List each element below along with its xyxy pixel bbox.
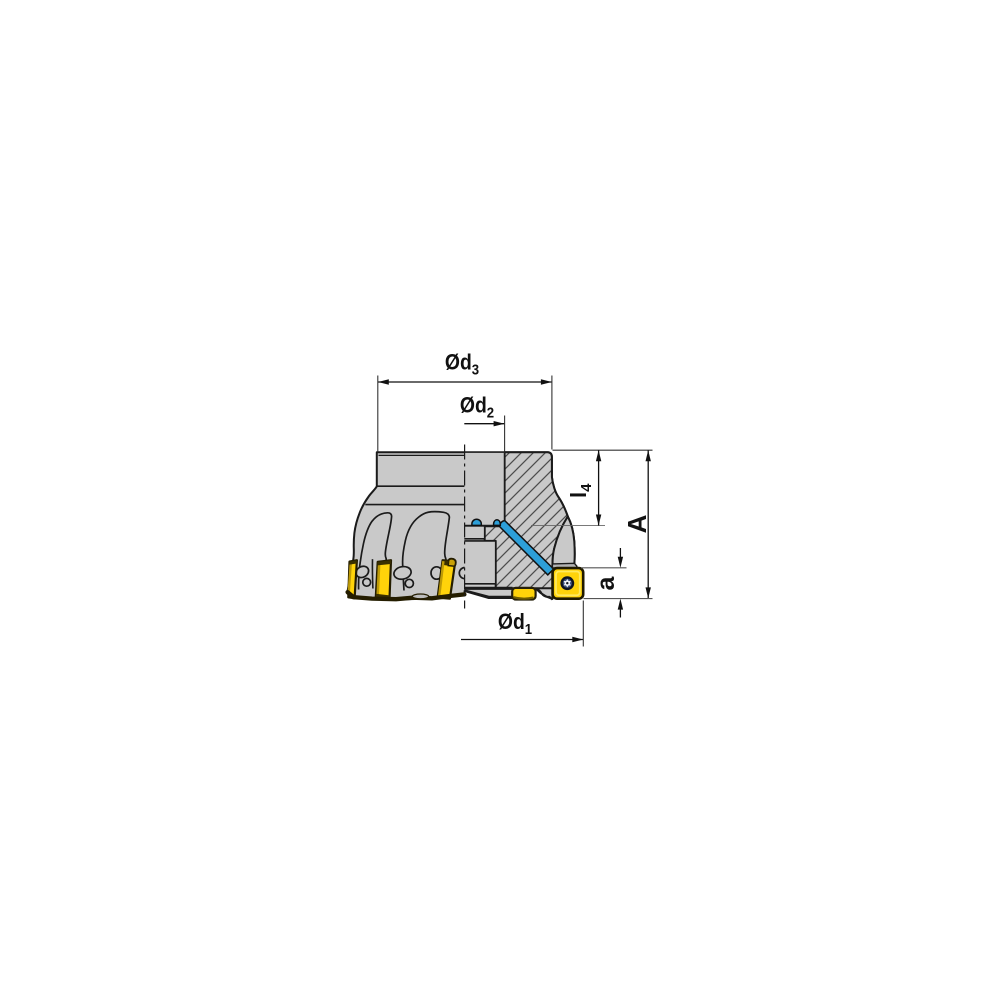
svg-text:a: a	[592, 575, 620, 590]
svg-text:A: A	[622, 514, 652, 533]
